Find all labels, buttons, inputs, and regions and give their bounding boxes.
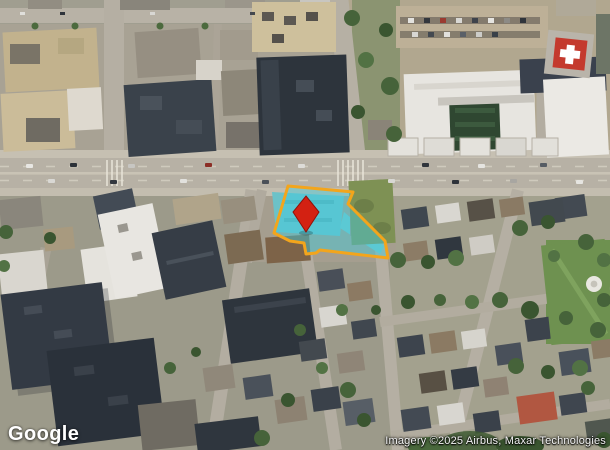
hospital-helipad — [544, 30, 594, 79]
boulevard-storefronts — [388, 138, 558, 156]
satellite-map-canvas[interactable]: Google Imagery ©2025 Airbus, Maxar Techn… — [0, 0, 610, 450]
imagery-attribution: Imagery ©2025 Airbus, Maxar Technologies — [385, 435, 606, 447]
hospital-parking-lot — [396, 6, 548, 48]
google-logo[interactable]: Google — [8, 423, 79, 446]
satellite-imagery — [0, 0, 610, 450]
red-roof-house — [516, 391, 558, 424]
